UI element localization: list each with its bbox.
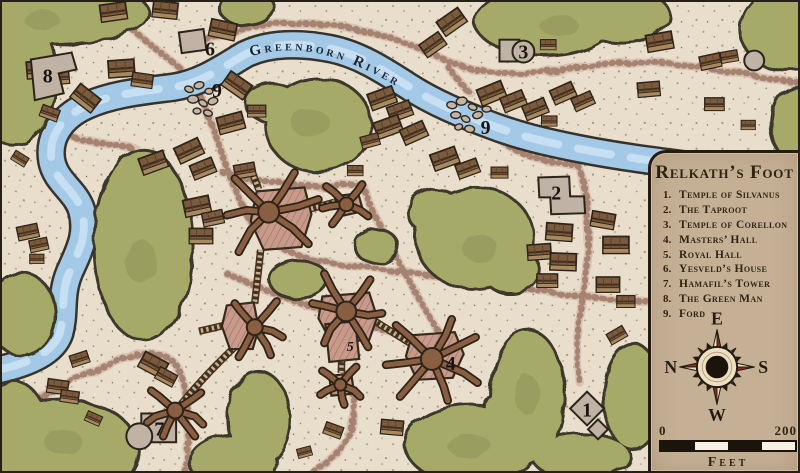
- map-marker-8: 8: [43, 65, 53, 87]
- legend-item-number: 1.: [663, 189, 679, 201]
- house: [540, 40, 556, 50]
- house: [541, 116, 557, 126]
- legend-item-label: Temple of Silvanus: [679, 189, 780, 201]
- house: [99, 2, 127, 22]
- legend-list: 1.Temple of Silvanus 2.The Taproot 3.Tem…: [651, 189, 798, 323]
- legend-item: 6.Yesveld’s House: [651, 263, 798, 278]
- house: [741, 120, 755, 129]
- house: [380, 419, 403, 435]
- house: [645, 31, 673, 52]
- house: [527, 243, 551, 260]
- compass-label-west: W: [708, 405, 726, 425]
- house: [537, 274, 558, 287]
- compass-rose: E N S W: [658, 308, 776, 426]
- legend-item: 2.The Taproot: [651, 204, 798, 219]
- legend-item-number: 5.: [663, 249, 679, 261]
- house: [705, 98, 724, 111]
- legend-item: 7.Hamafil’s Tower: [651, 278, 798, 293]
- legend-item: 1.Temple of Silvanus: [651, 189, 798, 204]
- house: [248, 105, 266, 117]
- house: [596, 277, 619, 292]
- building-hamafils-tower-turret: [126, 423, 152, 449]
- legend-item-number: 3.: [663, 219, 679, 231]
- scale-max-label: 200: [775, 424, 798, 438]
- building-yesvelds-house: [179, 29, 207, 53]
- house: [347, 166, 363, 176]
- legend-item-number: 8.: [663, 293, 679, 305]
- legend-item: 5.Royal Hall: [651, 249, 798, 264]
- legend-panel: Relkath’s Foot 1.Temple of Silvanus 2.Th…: [648, 150, 800, 473]
- legend-item-label: Masters’ Hall: [679, 234, 757, 246]
- map-marker-3: 3: [518, 42, 528, 64]
- compass-label-east: E: [711, 309, 723, 329]
- map-marker-9-west-ford: 9: [212, 80, 222, 102]
- legend-title: Relkath’s Foot: [651, 162, 798, 184]
- scale-bar: 0 200 Feet: [659, 424, 797, 471]
- house: [30, 254, 44, 263]
- legend-item-number: 7.: [663, 278, 679, 290]
- map-marker-1: 1: [582, 399, 592, 421]
- scale-min-label: 0: [659, 424, 667, 438]
- legend-item: 8.The Green Man: [651, 293, 798, 308]
- scale-unit-label: Feet: [659, 455, 797, 471]
- legend-item-label: Royal Hall: [679, 249, 742, 261]
- legend-item-label: Temple of Corellon: [679, 219, 788, 231]
- house: [590, 211, 616, 230]
- house: [720, 50, 738, 64]
- map-marker-6: 6: [205, 39, 215, 61]
- map-marker-5: 5: [347, 340, 354, 355]
- map-marker-9-east-ford: 9: [481, 117, 491, 139]
- house: [189, 228, 212, 243]
- compass-label-south: S: [758, 357, 768, 377]
- map-marker-2: 2: [551, 182, 561, 204]
- town-map: Greenborn River 8 6 9 3 9 2 5 4 7 1 Relk…: [0, 0, 800, 473]
- house: [152, 2, 178, 19]
- legend-item: 4.Masters’ Hall: [651, 234, 798, 249]
- round-building: [744, 51, 764, 71]
- house: [491, 167, 508, 178]
- legend-item-label: The Green Man: [679, 293, 763, 305]
- scale-bar-segments: [659, 440, 797, 452]
- house: [108, 59, 135, 78]
- compass-label-north: N: [664, 357, 677, 377]
- legend-item-number: 2.: [663, 204, 679, 216]
- house: [60, 390, 80, 404]
- legend-item-label: Hamafil’s Tower: [679, 278, 770, 290]
- legend-item-label: Yesveld’s House: [679, 263, 767, 275]
- house: [637, 81, 660, 97]
- legend-item: 3.Temple of Corellon: [651, 219, 798, 234]
- legend-item-number: 4.: [663, 234, 679, 246]
- house: [617, 296, 635, 308]
- house: [550, 253, 576, 271]
- house: [603, 237, 629, 254]
- legend-item-label: The Taproot: [679, 204, 747, 216]
- house: [131, 72, 153, 88]
- map-marker-7: 7: [154, 418, 164, 440]
- map-marker-4: 4: [446, 353, 456, 375]
- house: [546, 223, 573, 242]
- legend-item-number: 6.: [663, 263, 679, 275]
